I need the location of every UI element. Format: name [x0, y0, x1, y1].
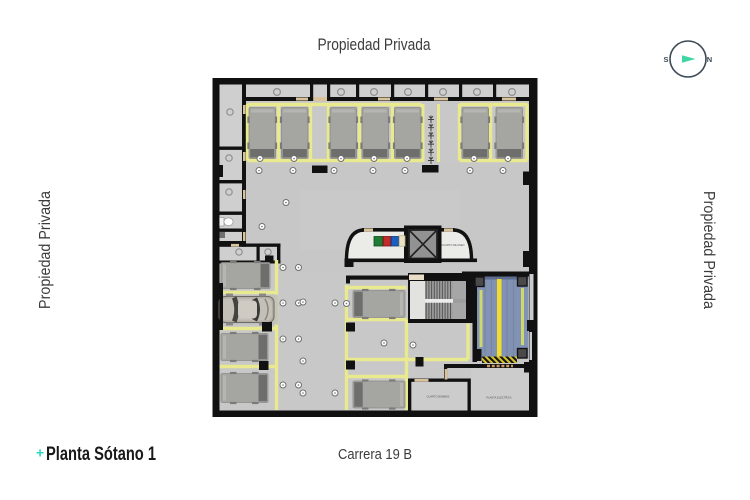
svg-text:CUARTO BOMBAS: CUARTO BOMBAS [427, 395, 450, 399]
svg-text:Propiedad Privada: Propiedad Privada [318, 36, 432, 54]
svg-text:+: + [36, 445, 44, 461]
svg-text:Carrera 19 B: Carrera 19 B [338, 446, 412, 463]
svg-text:Planta Sótano 1: Planta Sótano 1 [46, 444, 156, 465]
svg-text:N: N [707, 55, 712, 64]
svg-text:Propiedad Privada: Propiedad Privada [37, 191, 54, 309]
svg-text:S: S [663, 55, 668, 64]
svg-text:PLANTA ELECTRICA: PLANTA ELECTRICA [486, 396, 511, 400]
svg-text:CUARTO DE ASEO: CUARTO DE ASEO [442, 243, 465, 247]
svg-text:Propiedad Privada: Propiedad Privada [700, 191, 717, 309]
